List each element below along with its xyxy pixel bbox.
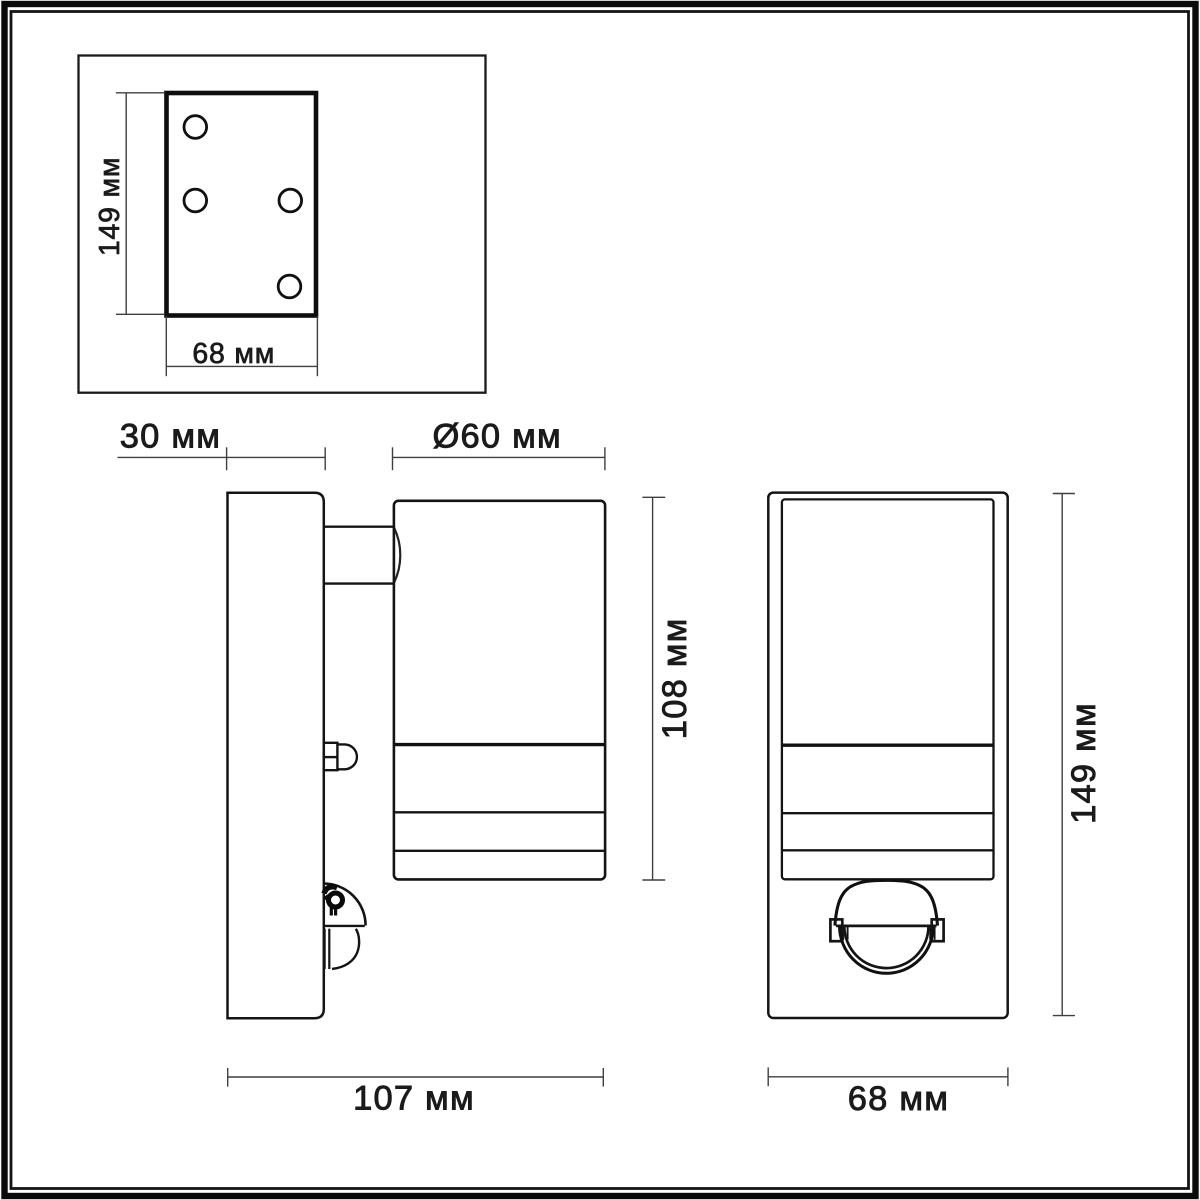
- svg-text:68 мм: 68 мм: [192, 338, 275, 370]
- svg-text:107 мм: 107 мм: [353, 1080, 475, 1118]
- svg-text:149 мм: 149 мм: [94, 157, 126, 256]
- svg-text:149 мм: 149 мм: [1065, 702, 1103, 824]
- svg-text:Ø60 мм: Ø60 мм: [432, 418, 561, 456]
- svg-text:108 мм: 108 мм: [656, 617, 694, 739]
- svg-text:68 мм: 68 мм: [848, 1080, 949, 1118]
- svg-text:30 мм: 30 мм: [120, 418, 221, 456]
